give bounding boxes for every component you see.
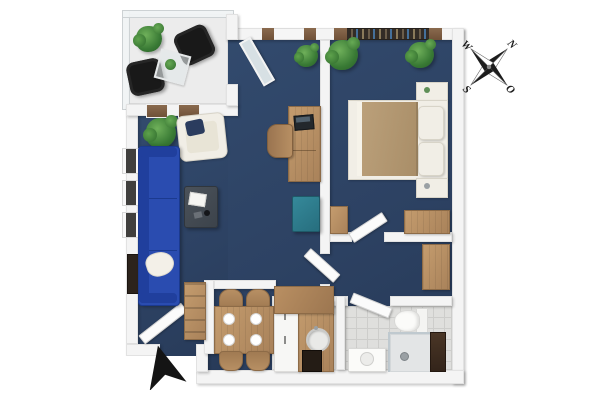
sofa-armrest-top	[139, 147, 177, 157]
compass-label-o: O	[503, 83, 517, 97]
wall-hall-bath-right	[390, 296, 452, 306]
wall-dining-kitchen-top	[214, 280, 276, 289]
wall-balcony-right-lower	[226, 84, 238, 106]
kitchen-faucet	[314, 326, 318, 330]
floor-plan-canvas: N O S W	[0, 0, 600, 400]
place-setting-1	[223, 313, 235, 325]
ottoman	[292, 196, 320, 232]
compass-rose: N O S W	[456, 34, 522, 100]
sofa-backrest	[139, 147, 149, 303]
bed-fold	[357, 102, 362, 176]
bedroom-window-curtain-right	[429, 28, 442, 40]
kitchen-counter-handle-2	[284, 336, 286, 344]
bedroom-dresser	[330, 206, 348, 234]
coffee-table-mug	[204, 210, 210, 216]
bedroom-wardrobe	[404, 210, 450, 234]
balcony-railing-left	[122, 10, 130, 110]
nightstand-top-decor	[424, 87, 430, 93]
kitchen-upper-cabinet	[274, 286, 334, 314]
desk-drawer-line	[292, 150, 316, 151]
coffee-table-book	[188, 192, 207, 207]
balcony-table-plant	[165, 59, 176, 70]
bathroom-sink	[360, 352, 374, 366]
toilet-bowl	[394, 310, 420, 332]
shower-dark-panel	[430, 332, 446, 372]
wall-bottom	[196, 370, 464, 384]
nightstand-bottom	[416, 178, 448, 198]
bedroom-window-curtain-left	[334, 28, 347, 40]
shelf-unit	[184, 282, 206, 340]
entrance-arrow	[138, 342, 188, 390]
bed-blanket	[362, 102, 418, 176]
sofa-seam-1	[149, 198, 177, 199]
shower	[388, 332, 432, 372]
nightstand-bottom-decor	[424, 183, 430, 189]
bed-pillow-1	[418, 106, 444, 140]
living-window-curtain-left	[262, 28, 274, 40]
balcony-railing-top	[122, 10, 234, 18]
living-plant-divider	[296, 45, 318, 67]
living-window-curtain-right	[304, 28, 316, 40]
dining-table	[214, 306, 274, 354]
wall-divider-living-bedroom	[320, 40, 330, 254]
place-setting-2	[250, 313, 262, 325]
desk-chair	[267, 124, 293, 158]
place-setting-4	[250, 334, 262, 346]
compass-label-w: W	[459, 38, 475, 54]
hallway-wardrobe	[422, 244, 450, 290]
shower-faucet	[400, 352, 409, 361]
bed-pillow-2	[418, 142, 444, 176]
wall-kitchen-bath	[336, 296, 345, 370]
dining-chair-3	[219, 351, 243, 371]
compass-label-s: S	[460, 83, 473, 96]
kitchen-oven	[302, 350, 322, 372]
sofa-armrest-bottom	[139, 293, 177, 303]
balcony-wall-window-1	[146, 104, 168, 118]
kitchen-sink	[306, 328, 330, 352]
dining-chair-4	[246, 351, 270, 371]
nightstand-top	[416, 82, 448, 102]
wall-balcony-right-upper	[226, 14, 238, 40]
place-setting-3	[223, 334, 235, 346]
